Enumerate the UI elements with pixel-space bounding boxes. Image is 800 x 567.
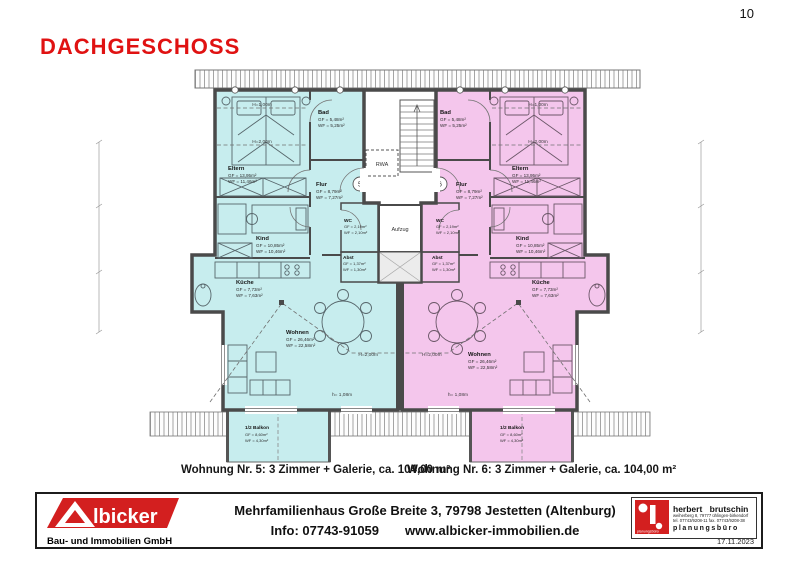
- party-wall: [396, 282, 404, 410]
- dimension-line-right: [698, 140, 704, 334]
- svg-text:WF = 22,58m²: WF = 22,58m²: [468, 365, 498, 370]
- svg-text:Küche: Küche: [532, 280, 550, 286]
- svg-text:WF = 5,25m²: WF = 5,25m²: [440, 123, 467, 128]
- svg-text:WF = 7,63m²: WF = 7,63m²: [236, 293, 263, 298]
- page-number: 10: [740, 6, 754, 21]
- rwa-box: RWA: [366, 150, 398, 176]
- svg-text:GF = 13,95m²: GF = 13,95m²: [228, 173, 257, 178]
- albicker-logo-graphic: lbicker: [43, 495, 193, 532]
- caption-apartment-6: Wohnung Nr. 6: 3 Zimmer + Galerie, ca. 1…: [407, 464, 676, 476]
- floor-plan: RWA Aufzug 5 6: [0, 0, 800, 567]
- svg-text:GF = 7,73m²: GF = 7,73m²: [236, 287, 262, 292]
- svg-text:GF = 8,79m²: GF = 8,79m²: [316, 189, 342, 194]
- svg-text:WF = 11,46m²: WF = 11,46m²: [512, 179, 541, 184]
- footer-info: Info: 07743-91059: [271, 523, 379, 538]
- footer-center: Mehrfamilienhaus Große Breite 3, 79798 J…: [225, 503, 625, 538]
- contact-line: Info: 07743-91059www.albicker-immobilien…: [225, 523, 625, 538]
- svg-text:GF = 5,48m²: GF = 5,48m²: [318, 117, 344, 122]
- svg-text:WF = 1,30m²: WF = 1,30m²: [343, 267, 367, 272]
- elevator-label: Aufzug: [391, 227, 408, 233]
- svg-text:WF = 1,30m²: WF = 1,30m²: [432, 267, 456, 272]
- svg-text:Bad: Bad: [318, 110, 329, 116]
- svg-text:Flur: Flur: [316, 182, 328, 188]
- elevator: Aufzug: [379, 205, 421, 282]
- gallery-marker-right: [516, 300, 521, 305]
- svg-text:Eltern: Eltern: [228, 166, 245, 172]
- svg-text:H=2,00m: H=2,00m: [252, 139, 272, 145]
- svg-text:H=2,00m: H=2,00m: [528, 139, 548, 145]
- footer-website[interactable]: www.albicker-immobilien.de: [405, 523, 579, 538]
- svg-text:WF = 10,46m²: WF = 10,46m²: [516, 249, 546, 254]
- svg-text:GF = 1,37m²: GF = 1,37m²: [432, 261, 455, 266]
- svg-text:Kind: Kind: [516, 236, 529, 242]
- architect-title: planungsbüro: [673, 525, 748, 532]
- gallery-marker-left: [279, 300, 284, 305]
- albicker-wordmark: lbicker: [93, 506, 158, 528]
- svg-text:Kind: Kind: [256, 236, 269, 242]
- svg-text:GF = 26,46m²: GF = 26,46m²: [468, 359, 497, 364]
- svg-text:Wohnen: Wohnen: [468, 352, 491, 358]
- svg-text:H=1,00m: H=1,00m: [528, 102, 548, 108]
- svg-text:WF = 10,46m²: WF = 10,46m²: [256, 249, 286, 254]
- svg-text:GF = 1,37m²: GF = 1,37m²: [343, 261, 366, 266]
- svg-text:GF = 8,60m²: GF = 8,60m²: [500, 432, 523, 437]
- svg-text:WF = 2,10m²: WF = 2,10m²: [344, 230, 368, 235]
- svg-text:GF = 8,79m²: GF = 8,79m²: [456, 189, 482, 194]
- architect-block: planungsbüro herbert brutschin weiherber…: [625, 494, 761, 547]
- svg-text:WF = 7,27m²: WF = 7,27m²: [316, 195, 343, 200]
- svg-text:GF = 10,85m²: GF = 10,85m²: [256, 243, 285, 248]
- svg-text:Bad: Bad: [440, 110, 451, 116]
- brutschin-badge-text: planungsbüro: [637, 530, 659, 534]
- svg-text:h= 1,08m: h= 1,08m: [448, 392, 468, 398]
- plan-date: 17.11.2023: [717, 537, 754, 546]
- svg-text:H=2,00m: H=2,00m: [358, 352, 378, 358]
- roof-hatch-top: [195, 70, 640, 88]
- dimension-line-left: [96, 140, 102, 334]
- svg-text:1/2 Balkon: 1/2 Balkon: [500, 425, 524, 431]
- property-address: Mehrfamilienhaus Große Breite 3, 79798 J…: [225, 503, 625, 518]
- svg-text:WF = 11,46m²: WF = 11,46m²: [228, 179, 257, 184]
- svg-text:Wohnen: Wohnen: [286, 330, 309, 336]
- albicker-logo: lbicker Bau- und Immobilien GmbH: [37, 495, 225, 547]
- svg-text:GF = 2,19m²: GF = 2,19m²: [436, 224, 459, 229]
- svg-text:h= 1,08m: h= 1,08m: [332, 392, 352, 398]
- svg-text:WF = 22,58m²: WF = 22,58m²: [286, 343, 316, 348]
- svg-text:Flur: Flur: [456, 182, 468, 188]
- svg-text:GF = 26,46m²: GF = 26,46m²: [286, 337, 315, 342]
- architect-phone: tel. 07743/9208-11 fax. 07743/9208-38: [673, 518, 748, 523]
- svg-text:GF = 8,60m²: GF = 8,60m²: [245, 432, 268, 437]
- svg-text:Küche: Küche: [236, 280, 254, 286]
- roof-hatch-bottom: [150, 412, 650, 436]
- architect-name: herbert brutschin: [673, 505, 748, 514]
- rwa-label: RWA: [376, 162, 389, 168]
- stairwell: [362, 90, 438, 172]
- svg-text:GF = 10,85m²: GF = 10,85m²: [516, 243, 545, 248]
- svg-text:1/2 Balkon: 1/2 Balkon: [245, 425, 269, 431]
- svg-text:H=2,00m: H=2,00m: [422, 352, 442, 358]
- svg-text:GF = 2,19m²: GF = 2,19m²: [344, 224, 367, 229]
- albicker-subtitle: Bau- und Immobilien GmbH: [47, 536, 225, 547]
- architect-box: planungsbüro herbert brutschin weiherber…: [631, 497, 757, 539]
- svg-text:H=1,00m: H=1,00m: [252, 102, 272, 108]
- svg-text:GF = 7,73m²: GF = 7,73m²: [532, 287, 558, 292]
- page-title: DACHGESCHOSS: [40, 34, 240, 60]
- svg-text:WF = 4,30m²: WF = 4,30m²: [500, 438, 524, 443]
- svg-text:WF = 5,25m²: WF = 5,25m²: [318, 123, 345, 128]
- svg-text:WF = 7,63m²: WF = 7,63m²: [532, 293, 559, 298]
- footer: lbicker Bau- und Immobilien GmbH Mehrfam…: [35, 492, 763, 549]
- svg-text:Eltern: Eltern: [512, 166, 529, 172]
- svg-text:WF = 4,30m²: WF = 4,30m²: [245, 438, 269, 443]
- svg-text:GF = 13,95m²: GF = 13,95m²: [512, 173, 541, 178]
- svg-text:WF = 7,27m²: WF = 7,27m²: [456, 195, 483, 200]
- svg-text:GF = 5,48m²: GF = 5,48m²: [440, 117, 466, 122]
- svg-text:WF = 2,10m²: WF = 2,10m²: [436, 230, 460, 235]
- brutschin-logo-icon: planungsbüro: [635, 500, 669, 536]
